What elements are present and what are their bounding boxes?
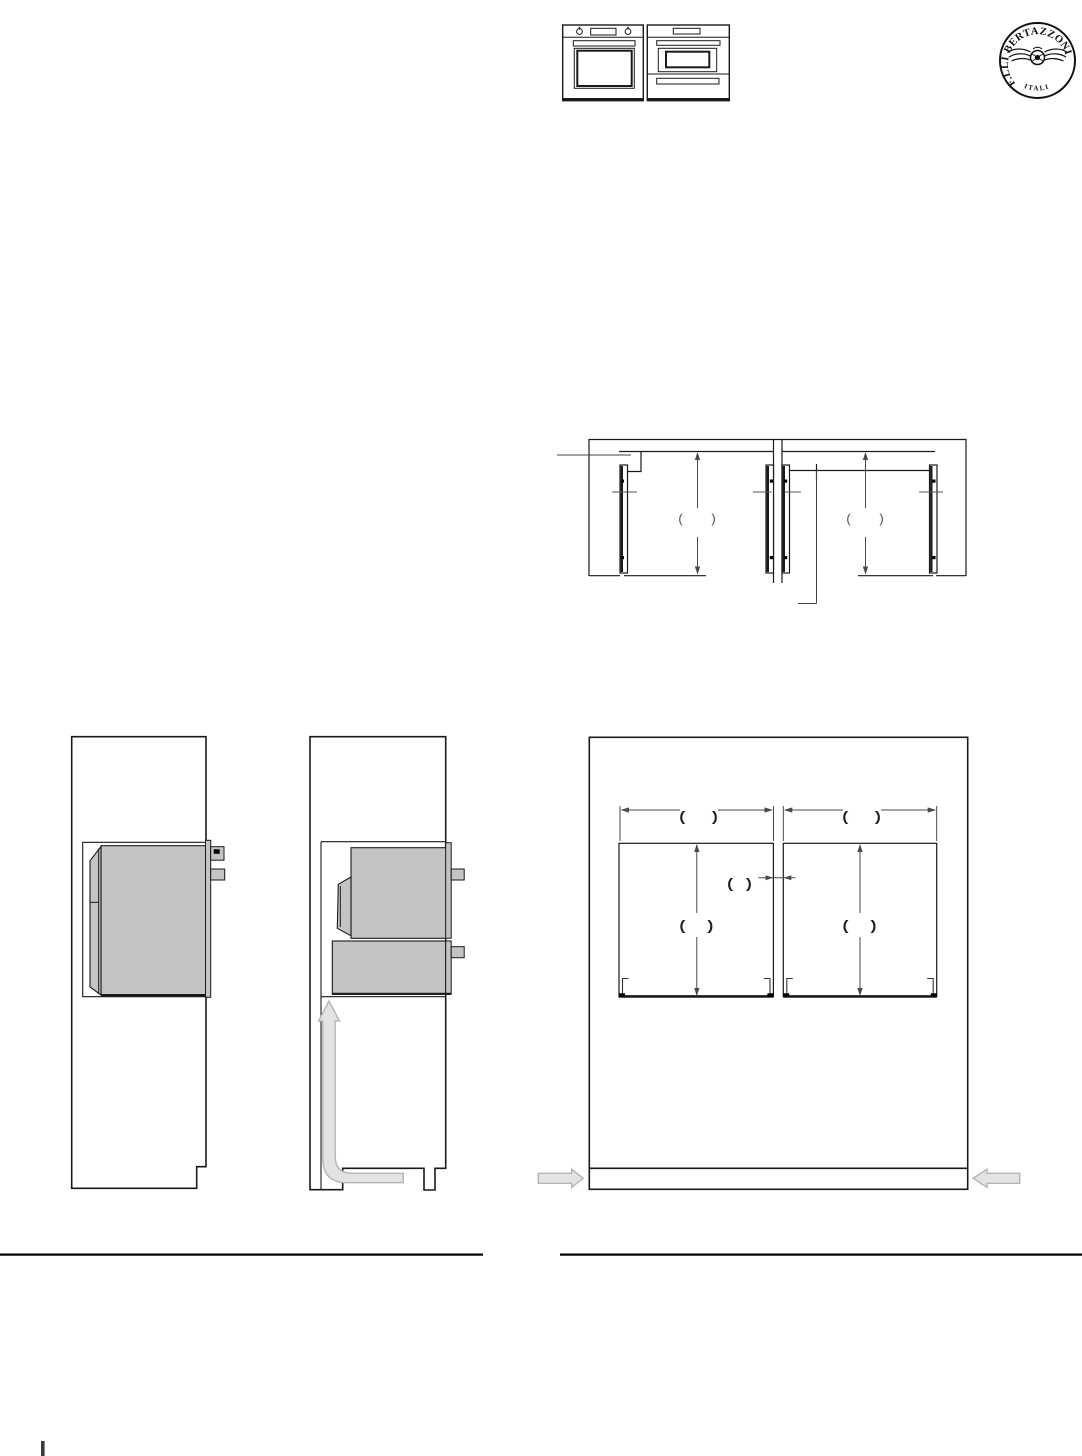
bertazzoni-logo: F.LLI BERTAZZONI ITALIA (0, 0, 1075, 98)
oven-handle-icon (573, 41, 635, 46)
drawer-bracket-tab (451, 947, 464, 958)
mounting-rail (620, 465, 628, 573)
front-width-label-left: ( ) (680, 809, 718, 824)
oven-knob-icon (577, 27, 583, 35)
side-view-combo-oven-diagram (310, 737, 464, 1190)
warming-drawer-side-profile (332, 941, 464, 994)
mounting-rail (930, 465, 938, 573)
oven-knob-icon (625, 27, 631, 35)
speed-oven-door-bump (337, 877, 351, 936)
speed-oven-display-icon (673, 28, 700, 34)
side-view-single-oven-diagram (72, 737, 225, 1189)
oven-side-profile (90, 840, 225, 997)
mounting-rail (766, 465, 774, 573)
leader-line (798, 471, 817, 604)
speed-oven-front-trim (446, 843, 452, 939)
ventilation-arrow-left (538, 1169, 583, 1187)
mounting-rail (782, 465, 790, 573)
oven-bracket-tab (211, 869, 225, 880)
footer-rule-right (560, 1254, 1082, 1256)
drawer-front-trim (446, 941, 452, 994)
front-width-label-right: ( ) (843, 809, 881, 824)
plan-depth-label-right: ( ) (846, 511, 884, 526)
speed-oven-handle-icon (657, 41, 720, 46)
front-gap-label: ( ) (728, 876, 753, 891)
front-view-cutout-diagram: ( ) ( ) ( ) ( ) ( ) (589, 737, 967, 1189)
logo-country-text: ITALIA (0, 0, 1051, 93)
warming-drawer-handle-icon (657, 78, 719, 84)
cutout-plan-view-diagram: ( ) ( ) (557, 440, 966, 604)
oven-display-icon (591, 28, 616, 35)
oven-vent-tab (211, 847, 224, 861)
front-height-label-right: ( ) (843, 918, 877, 933)
svg-text:ITALIA: ITALIA (0, 0, 1051, 93)
plan-depth-label-left: ( ) (678, 511, 716, 526)
wall-oven-icon (563, 25, 644, 101)
oven-front-trim (206, 840, 211, 997)
ventilation-arrow-right (973, 1169, 1020, 1187)
footer-rule-left (0, 1254, 483, 1256)
manual-page: F.LLI BERTAZZONI ITALIA (0, 0, 1082, 1456)
front-height-label-left: ( ) (680, 918, 714, 933)
page-number-tick (41, 1441, 45, 1456)
speed-oven-icon (647, 25, 729, 101)
speed-oven-bracket-tab (451, 869, 464, 880)
speed-oven-side-profile (337, 843, 464, 939)
